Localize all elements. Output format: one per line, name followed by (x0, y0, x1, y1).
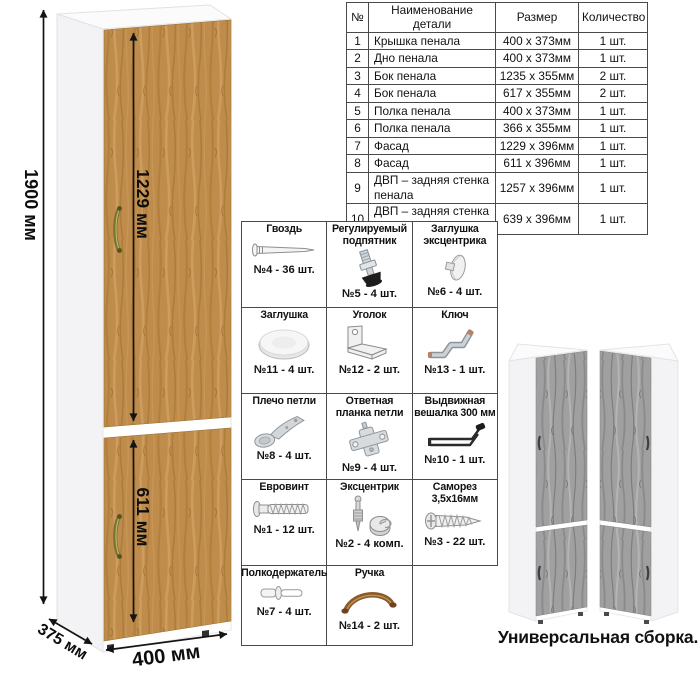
table-row: 2Дно пенала400 x 373мм1 шт. (347, 50, 648, 68)
part-qty: 1 шт. (579, 120, 648, 138)
part-name: Полка пенала (369, 120, 496, 138)
col-header-num: № (347, 3, 369, 33)
part-num: 7 (347, 137, 369, 155)
hardware-item-name: Плечо петли (252, 396, 316, 408)
dimension-lower-door-label: 611 мм (133, 488, 153, 547)
hardware-item: Регулируемый подпятник №5 - 4 шт. (327, 222, 411, 303)
hardware-item-qty: №9 - 4 шт. (342, 462, 397, 474)
dimension-height-label: 1900 мм (21, 169, 41, 241)
table-row: 9ДВП – задняя стенка пенала1257 x 396мм1… (347, 172, 648, 203)
main-cabinet-diagram: 1900 мм 1229 мм 611 мм 375 мм 400 мм (0, 0, 250, 683)
hardware-item-name: Евровинт (259, 482, 309, 494)
hardware-item: Уголок №12 - 2 шт. (327, 308, 411, 379)
part-size: 1229 x 396мм (496, 137, 579, 155)
hardware-item-qty: №10 - 1 шт. (424, 454, 485, 466)
part-num: 9 (347, 172, 369, 203)
col-header-name: Наименование детали (369, 3, 496, 33)
hardware-item-name: Саморез 3,5х16мм (414, 482, 496, 506)
hardware-item: Выдвижная вешалка 300 мм №10 - 1 шт. (413, 394, 497, 469)
part-size: 400 x 373мм (496, 50, 579, 68)
hardware-item-name: Гвоздь (266, 224, 302, 236)
part-qty: 1 шт. (579, 32, 648, 50)
nail-icon (243, 236, 325, 264)
hardware-item-qty: №1 - 12 шт. (254, 524, 315, 536)
part-size: 611 x 396мм (496, 155, 579, 173)
corner-bracket-icon (328, 322, 410, 364)
self-tapping-screw-icon (414, 506, 496, 536)
col-header-size: Размер (496, 3, 579, 33)
part-num: 2 (347, 50, 369, 68)
hardware-item: Полкодержатель №7 - 4 шт. (242, 566, 326, 621)
hardware-item: Гвоздь №4 - 36 шт. (242, 222, 326, 279)
part-qty: 1 шт. (579, 50, 648, 68)
cam-cap-icon (414, 248, 496, 286)
part-name: Бок пенала (369, 67, 496, 85)
hardware-item-qty: №8 - 4 шт. (257, 450, 312, 462)
variant-cabinet-left (509, 344, 587, 624)
parts-table: № Наименование детали Размер Количество … (346, 2, 648, 235)
part-num: 1 (347, 32, 369, 50)
parts-table-header: № Наименование детали Размер Количество (347, 3, 648, 33)
hardware-item-name: Заглушка (260, 310, 308, 322)
euro-screw-icon (243, 494, 325, 524)
hardware-item-name: Эксцентрик (340, 482, 399, 494)
part-size: 639 x 396мм (496, 203, 579, 234)
part-qty: 1 шт. (579, 203, 648, 234)
hinge-arm-icon (243, 408, 325, 450)
hardware-grid-empty-cell (412, 566, 497, 646)
variant-handle-icon (539, 566, 540, 580)
hardware-item-name: Ключ (441, 310, 468, 322)
variant-cabinets (500, 338, 700, 638)
hardware-item-qty: №3 - 22 шт. (424, 536, 485, 548)
part-qty: 2 шт. (579, 85, 648, 103)
part-size: 617 x 355мм (496, 85, 579, 103)
hardware-item: Плечо петли №8 - 4 шт. (242, 394, 326, 465)
hardware-item-name: Регулируемый подпятник (328, 224, 410, 248)
col-header-qty: Количество (579, 3, 648, 33)
part-name: Фасад (369, 155, 496, 173)
part-qty: 1 шт. (579, 102, 648, 120)
handle-icon (328, 580, 410, 620)
lower-door (104, 428, 231, 641)
table-row: 3Бок пенала1235 x 355мм2 шт. (347, 67, 648, 85)
cover-cap-icon (243, 322, 325, 364)
part-name: Фасад (369, 137, 496, 155)
hinge-plate-icon (328, 420, 410, 462)
hardware-item-qty: №2 - 4 комп. (335, 538, 403, 550)
hardware-item: Эксцентрик №2 - 4 комп. (327, 480, 411, 553)
variants-caption: Универсальная сборка. (496, 627, 700, 648)
part-name: Бок пенала (369, 85, 496, 103)
variant-cabinet-right (600, 344, 678, 624)
hardware-item-qty: №4 - 36 шт. (254, 264, 315, 276)
hardware-item: Ключ №13 - 1 шт. (413, 308, 497, 379)
hardware-item: Евровинт №1 - 12 шт. (242, 480, 326, 539)
hardware-item-qty: №7 - 4 шт. (257, 606, 312, 618)
table-row: 7Фасад1229 x 396мм1 шт. (347, 137, 648, 155)
table-row: 4Бок пенала617 x 355мм2 шт. (347, 85, 648, 103)
assembly-sheet: 1900 мм 1229 мм 611 мм 375 мм 400 мм № Н… (0, 0, 700, 683)
hardware-item-qty: №11 - 4 шт. (254, 364, 315, 376)
part-num: 3 (347, 67, 369, 85)
hardware-grid: Гвоздь №4 - 36 шт. Регулируемый подпятни… (241, 221, 498, 646)
cam-lock-icon (328, 494, 410, 538)
hardware-item-qty: №14 - 2 шт. (339, 620, 400, 632)
hardware-item: Ручка №14 - 2 шт. (327, 566, 411, 635)
table-row: 8Фасад611 x 396мм1 шт. (347, 155, 648, 173)
shelf-pin-icon (243, 580, 325, 606)
hardware-item: Ответная планка петли №9 - 4 шт. (327, 394, 411, 477)
adjustable-foot-icon (328, 248, 410, 288)
hardware-item-qty: №6 - 4 шт. (427, 286, 482, 298)
upper-door (104, 20, 231, 427)
part-num: 4 (347, 85, 369, 103)
part-num: 8 (347, 155, 369, 173)
hardware-item-name: Выдвижная вешалка 300 мм (414, 396, 496, 420)
part-name: Дно пенала (369, 50, 496, 68)
variant-handle-icon (539, 436, 540, 450)
hardware-item-name: Заглушка эксцентрика (414, 224, 496, 248)
part-name: Полка пенала (369, 102, 496, 120)
hardware-item-qty: №5 - 4 шт. (342, 288, 397, 300)
part-qty: 1 шт. (579, 155, 648, 173)
part-size: 366 x 355мм (496, 120, 579, 138)
hardware-item-name: Полкодержатель (241, 568, 327, 580)
hardware-item: Заглушка эксцентрика №6 - 4 шт. (413, 222, 497, 301)
hex-key-icon (414, 322, 496, 364)
hardware-item-qty: №12 - 2 шт. (339, 364, 400, 376)
table-row: 6Полка пенала366 x 355мм1 шт. (347, 120, 648, 138)
part-size: 400 x 373мм (496, 102, 579, 120)
part-size: 400 x 373мм (496, 32, 579, 50)
part-num: 5 (347, 102, 369, 120)
pullout-hanger-icon (414, 420, 496, 454)
part-size: 1235 x 355мм (496, 67, 579, 85)
part-num: 6 (347, 120, 369, 138)
hardware-item: Саморез 3,5х16мм №3 - 22 шт. (413, 480, 497, 551)
hardware-item-qty: №13 - 1 шт. (424, 364, 485, 376)
hardware-item-name: Уголок (353, 310, 387, 322)
part-qty: 1 шт. (579, 172, 648, 203)
table-row: 5Полка пенала400 x 373мм1 шт. (347, 102, 648, 120)
dimension-upper-door-label: 1229 мм (133, 169, 153, 239)
part-name: ДВП – задняя стенка пенала (369, 172, 496, 203)
table-row: 1Крышка пенала400 x 373мм1 шт. (347, 32, 648, 50)
part-size: 1257 x 396мм (496, 172, 579, 203)
hardware-item: Заглушка №11 - 4 шт. (242, 308, 326, 379)
part-qty: 2 шт. (579, 67, 648, 85)
hardware-item-name: Ручка (355, 568, 384, 580)
hardware-item-name: Ответная планка петли (328, 396, 410, 420)
part-qty: 1 шт. (579, 137, 648, 155)
part-name: Крышка пенала (369, 32, 496, 50)
